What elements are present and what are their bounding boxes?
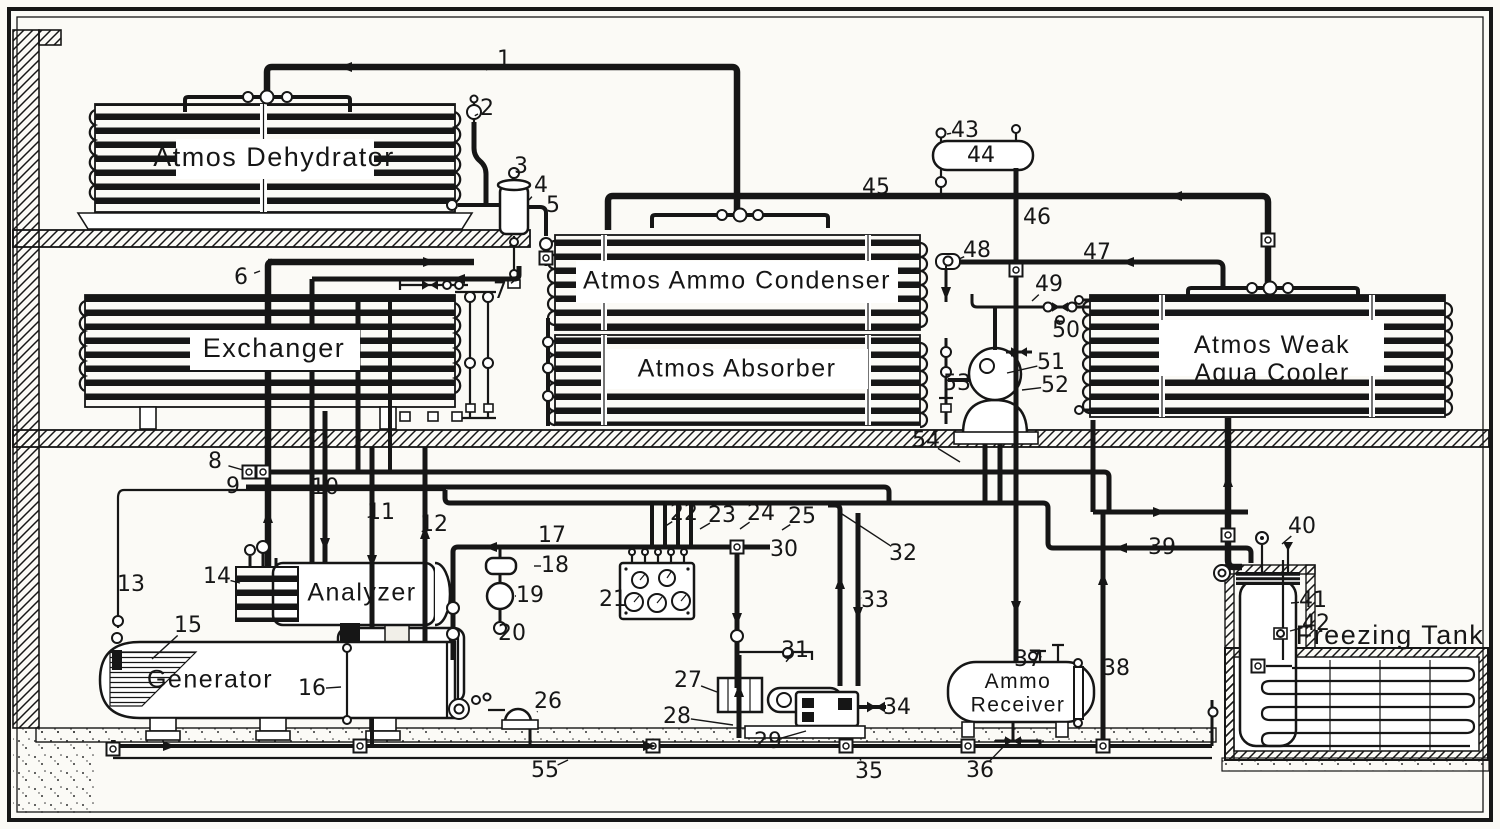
callout-55: 55 [531, 758, 559, 783]
equipment-label-atmos-dehydrator: Atmos Dehydrator [153, 142, 395, 172]
callout-11: 11 [367, 500, 395, 525]
vessel-3-purge-drum [498, 168, 530, 288]
callout-3: 3 [514, 154, 528, 179]
pump-26-group [449, 694, 538, 730]
callout-leader-28 [691, 719, 733, 725]
callout-33: 33 [861, 588, 889, 613]
callout-54: 54 [912, 428, 940, 453]
pipe-2-s-jog [474, 122, 486, 205]
floor-main [13, 430, 1489, 447]
left-wall-cap [39, 30, 61, 45]
dehydrator-base [78, 213, 472, 229]
trap-18 [486, 558, 516, 574]
callout-34: 34 [883, 695, 911, 720]
callout-6: 6 [234, 265, 248, 290]
callout-48: 48 [963, 238, 991, 263]
callout-19: 19 [516, 583, 544, 608]
equipment-label-atmos-weak-aqua-cooler: Atmos WeakAqua Cooler [1194, 331, 1350, 387]
accumulator-header [1236, 572, 1300, 585]
callout-39: 39 [1148, 535, 1176, 560]
callout-8: 8 [208, 449, 222, 474]
coil-bends-right [455, 112, 460, 202]
callout-18: 18 [541, 553, 569, 578]
callout-28: 28 [663, 704, 691, 729]
equipment-label-atmos-absorber: Atmos Absorber [638, 355, 837, 383]
callout-40: 40 [1288, 514, 1316, 539]
callout-45: 45 [862, 175, 890, 200]
equipment-label-generator: Generator [147, 666, 273, 694]
callout-leader-4 [529, 197, 532, 200]
ground-block-left [13, 728, 97, 818]
callout-22: 22 [670, 501, 698, 526]
callout-23: 23 [708, 503, 736, 528]
callout-46: 46 [1023, 205, 1051, 230]
generator-dip-tube [112, 650, 122, 670]
exchanger-leg [140, 407, 156, 429]
pipe-47 [958, 262, 1223, 288]
callout-14: 14 [203, 564, 231, 589]
callout-leader-54 [938, 448, 960, 462]
callout-27: 27 [674, 668, 702, 693]
callout-35: 35 [855, 759, 883, 784]
equipment-label-exchanger: Exchanger [203, 333, 346, 363]
callout-29: 29 [754, 729, 782, 754]
callout-9: 9 [226, 474, 240, 499]
callout-24: 24 [747, 501, 775, 526]
callout-20: 20 [498, 621, 526, 646]
equipment-label-ammo-receiver: AmmoReceiver [971, 670, 1066, 717]
callout-leader-6 [254, 271, 260, 273]
floor-upper [13, 230, 530, 247]
gauge-panel-21 [620, 563, 694, 619]
callout-leader-3 [512, 179, 513, 180]
float-19 [487, 583, 513, 609]
callout-31: 31 [781, 638, 809, 663]
left-wall-hatch [13, 30, 39, 728]
callout-15: 15 [174, 613, 202, 638]
callout-12: 12 [420, 512, 448, 537]
callout-32: 32 [889, 541, 917, 566]
callout-53: 53 [943, 371, 971, 396]
callout-21: 21 [599, 587, 627, 612]
callout-42: 42 [1302, 611, 1330, 636]
callout-16: 16 [298, 676, 326, 701]
callout-38: 38 [1102, 656, 1130, 681]
callout-leader-52 [1022, 388, 1041, 390]
accumulator-wall-left [1225, 565, 1234, 760]
absorber-pump-51 [954, 348, 1038, 444]
equipment-label-analyzer: Analyzer [307, 579, 416, 607]
callout-leader-41 [1291, 602, 1299, 603]
analyzer-end-cap [435, 563, 450, 625]
callout-43: 43 [951, 118, 979, 143]
callout-leader-8 [228, 466, 243, 470]
gauge-glass [1074, 667, 1083, 719]
callout-36: 36 [966, 758, 994, 783]
callout-7: 7 [493, 279, 507, 304]
callout-2: 2 [480, 96, 494, 121]
callout-25: 25 [788, 504, 816, 529]
pipe-7 [312, 266, 519, 279]
callout-leader-55 [558, 760, 568, 765]
callout-leader-32 [839, 512, 891, 546]
scanned-diagram-page: Atmos DehydratorExchangerAtmos Ammo Cond… [0, 0, 1500, 829]
callout-17: 17 [538, 523, 566, 548]
callout-51: 51 [1037, 350, 1065, 375]
equipment-label-atmos-ammo-condenser: Atmos Ammo Condenser [583, 267, 891, 295]
callout-47: 47 [1083, 240, 1111, 265]
callout-1: 1 [497, 47, 511, 72]
callout-leader-27 [701, 686, 717, 692]
callout-26: 26 [534, 689, 562, 714]
heat-exchanger-14 [236, 567, 298, 621]
callout-30: 30 [770, 537, 798, 562]
callout-50: 50 [1052, 318, 1080, 343]
callout-13: 13 [117, 572, 145, 597]
pipe-32 [828, 505, 840, 686]
callout-5: 5 [546, 193, 560, 218]
callout-10: 10 [311, 475, 339, 500]
refrigeration-system-diagram: Atmos DehydratorExchangerAtmos Ammo Cond… [0, 0, 1500, 829]
callout-44: 44 [967, 143, 995, 168]
callout-41: 41 [1299, 588, 1327, 613]
callout-49: 49 [1035, 272, 1063, 297]
callout-52: 52 [1041, 373, 1069, 398]
coil-bends-left [90, 110, 95, 200]
callout-37: 37 [1014, 647, 1042, 672]
